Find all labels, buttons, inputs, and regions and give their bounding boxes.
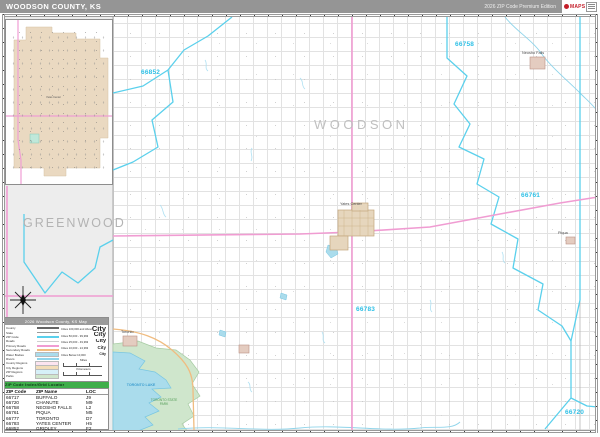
town-label-neosho-falls: Neosho Falls (522, 51, 544, 55)
legend-item-label: Rivers (6, 357, 15, 361)
legend-symbol-list: County State ZIP Code Roads (6, 326, 59, 379)
legend-city-sizes: Cities 100,000 and Above City Cities 50,… (61, 326, 106, 358)
scale-label-kilometers: Kilometers (61, 367, 106, 371)
legend-item-label: State (6, 331, 13, 335)
zip-index-table: ZIP Code ZIP Name LOC 66717 BUFFALO J9 6… (3, 388, 109, 430)
legend-item-label: Primary Roads (6, 344, 26, 348)
legend-swatch (37, 341, 59, 343)
legend-city-category: Cities 50,000 - 99,999 (61, 334, 88, 338)
legend-panel: 2026 Woodson County, KS Map County State (3, 317, 109, 382)
legend-swatch (37, 336, 59, 338)
neighbor-county-label: GREENWOOD (23, 216, 126, 230)
legend-city-category: Cities 100,000 and Above (61, 327, 92, 331)
legend-item-label: County (6, 326, 16, 330)
legend-item: Parks (6, 374, 59, 378)
legend-item-label: Roads (6, 339, 15, 343)
rivers (178, 17, 598, 429)
legend-city-sample: City (99, 353, 106, 357)
inset-town-label: Yates Center (46, 96, 61, 99)
legend-city-sample: City (96, 339, 106, 345)
frame-ticks-right (595, 14, 598, 433)
town-piqua (566, 237, 575, 244)
legend-item-label: Water Bodies (6, 353, 24, 357)
legend-city-category: Cities 10,000 - 24,999 (61, 346, 88, 350)
legend-city-category: Cities Below 10,000 (61, 353, 86, 357)
legend-title: 2026 Woodson County, KS Map (4, 318, 108, 325)
compass-needle (20, 294, 26, 306)
inset-street-texture (12, 26, 106, 174)
inset-map: Yates Center (5, 19, 113, 185)
frame-ticks-top (2, 14, 598, 17)
park-label: TORONTO STATE PARK (149, 399, 179, 406)
col-zip-name: ZIP Name (36, 389, 86, 394)
legend-swatch (37, 349, 59, 351)
town-neosho-falls (530, 57, 545, 69)
county-label: WOODSON (314, 117, 409, 132)
legend-city-category: Cities 25,000 - 49,999 (61, 340, 88, 344)
town-small (239, 345, 249, 353)
ponds (219, 245, 338, 337)
zip-table-body: 66717 BUFFALO J9 66720 CHANUTE M9 66758 … (4, 395, 108, 431)
col-loc: LOC (86, 389, 106, 394)
legend-swatch (37, 332, 59, 334)
legend-swatch (37, 327, 59, 329)
legend-city-sample: City (97, 346, 106, 351)
zip-label-66783: 66783 (356, 306, 375, 313)
legend-item-label: County Regions (6, 361, 27, 365)
frame-ticks-bottom (2, 430, 598, 433)
scale-label-miles: Miles (61, 358, 106, 362)
compass-rose (10, 286, 36, 316)
frame-ticks-left (2, 14, 5, 433)
legend-swatch (35, 374, 59, 380)
zip-label-66720: 66720 (565, 409, 584, 416)
scale-bar-kilometers: Kilometers (61, 367, 106, 376)
zip-label-66761: 66761 (521, 192, 540, 199)
legend-item-label: Secondary Roads (6, 348, 30, 352)
town-label-yates-center: Yates Center (340, 202, 362, 206)
town-label-toronto: Toronto (121, 330, 134, 334)
scale-bar-miles: Miles (61, 358, 106, 367)
legend-item-label: ZIP Regions (6, 370, 22, 374)
legend-item-label: Parks (6, 374, 14, 378)
zip-label-66852: 66852 (141, 69, 160, 76)
col-zip-code: ZIP Code (6, 389, 36, 394)
scale-ruler (63, 372, 102, 376)
town-toronto (123, 336, 137, 346)
legend-item-label: ZIP Code (6, 335, 19, 339)
zip-label-66758: 66758 (455, 41, 474, 48)
legend-swatch (37, 345, 59, 347)
lake-label: TORONTO LAKE (126, 383, 156, 387)
legend-item-label: City Regions (6, 366, 23, 370)
legend-swatch (35, 352, 59, 358)
map-sheet: WOODSON COUNTY, KS 2026 ZIP Code Premium… (0, 0, 600, 437)
streams (160, 60, 505, 392)
town-label-piqua: Piqua (558, 231, 568, 235)
legend-swatch (37, 358, 59, 360)
